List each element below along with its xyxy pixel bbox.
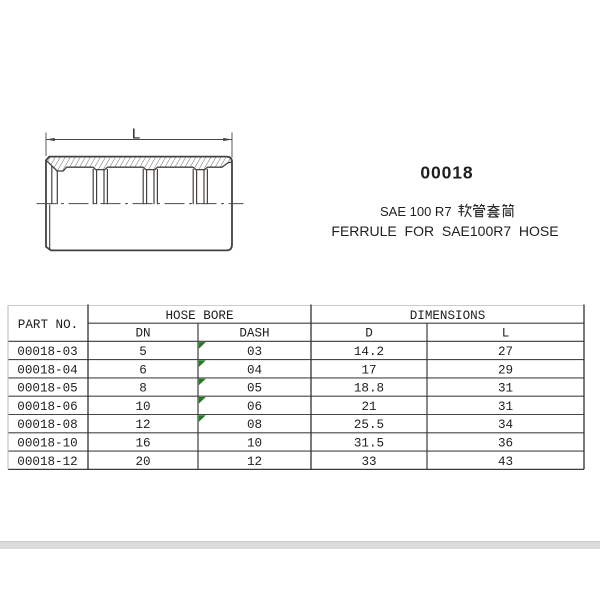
svg-text:DASH: DASH [239,327,269,341]
svg-text:34: 34 [498,418,513,432]
svg-text:20: 20 [135,455,150,469]
svg-text:6: 6 [139,363,147,377]
svg-text:21: 21 [361,400,376,414]
svg-text:25.5: 25.5 [354,418,384,432]
svg-text:10: 10 [247,437,262,451]
svg-text:D: D [365,327,373,341]
svg-text:18.8: 18.8 [354,382,384,396]
svg-text:14.2: 14.2 [354,345,384,359]
svg-text:16: 16 [135,437,150,451]
svg-text:00018-04: 00018-04 [17,363,77,377]
svg-text:05: 05 [247,382,262,396]
svg-text:12: 12 [247,455,262,469]
svg-text:5: 5 [139,345,147,359]
svg-text:03: 03 [247,345,262,359]
svg-text:00018: 00018 [420,163,473,183]
svg-text:06: 06 [247,400,262,414]
svg-text:00018-08: 00018-08 [17,418,77,432]
svg-text:17: 17 [361,363,376,377]
svg-text:04: 04 [247,363,262,377]
svg-text:12: 12 [135,418,150,432]
svg-text:31.5: 31.5 [354,437,384,451]
svg-text:DN: DN [135,327,150,341]
svg-text:SAE 100 R7: SAE 100 R7 [380,204,452,219]
svg-text:00018-06: 00018-06 [17,400,77,414]
svg-text:27: 27 [498,345,513,359]
svg-text:33: 33 [361,455,376,469]
svg-text:00018-05: 00018-05 [17,382,77,396]
svg-text:8: 8 [139,382,147,396]
svg-text:PART NO.: PART NO. [18,318,78,332]
svg-text:00018-12: 00018-12 [17,455,77,469]
svg-text:29: 29 [498,363,513,377]
svg-text:43: 43 [498,455,513,469]
svg-text:31: 31 [498,400,513,414]
svg-text:00018-10: 00018-10 [17,437,77,451]
svg-text:00018-03: 00018-03 [17,345,77,359]
svg-text:10: 10 [135,400,150,414]
svg-text:36: 36 [498,437,513,451]
svg-text:31: 31 [498,382,513,396]
svg-text:08: 08 [247,418,262,432]
svg-text:L: L [132,125,140,142]
svg-text:HOSE BORE: HOSE BORE [165,309,233,323]
svg-text:L: L [502,327,510,341]
svg-text:DIMENSIONS: DIMENSIONS [410,309,486,323]
svg-text:FERRULE FOR SAE100R7 HOSE: FERRULE FOR SAE100R7 HOSE [331,223,558,239]
